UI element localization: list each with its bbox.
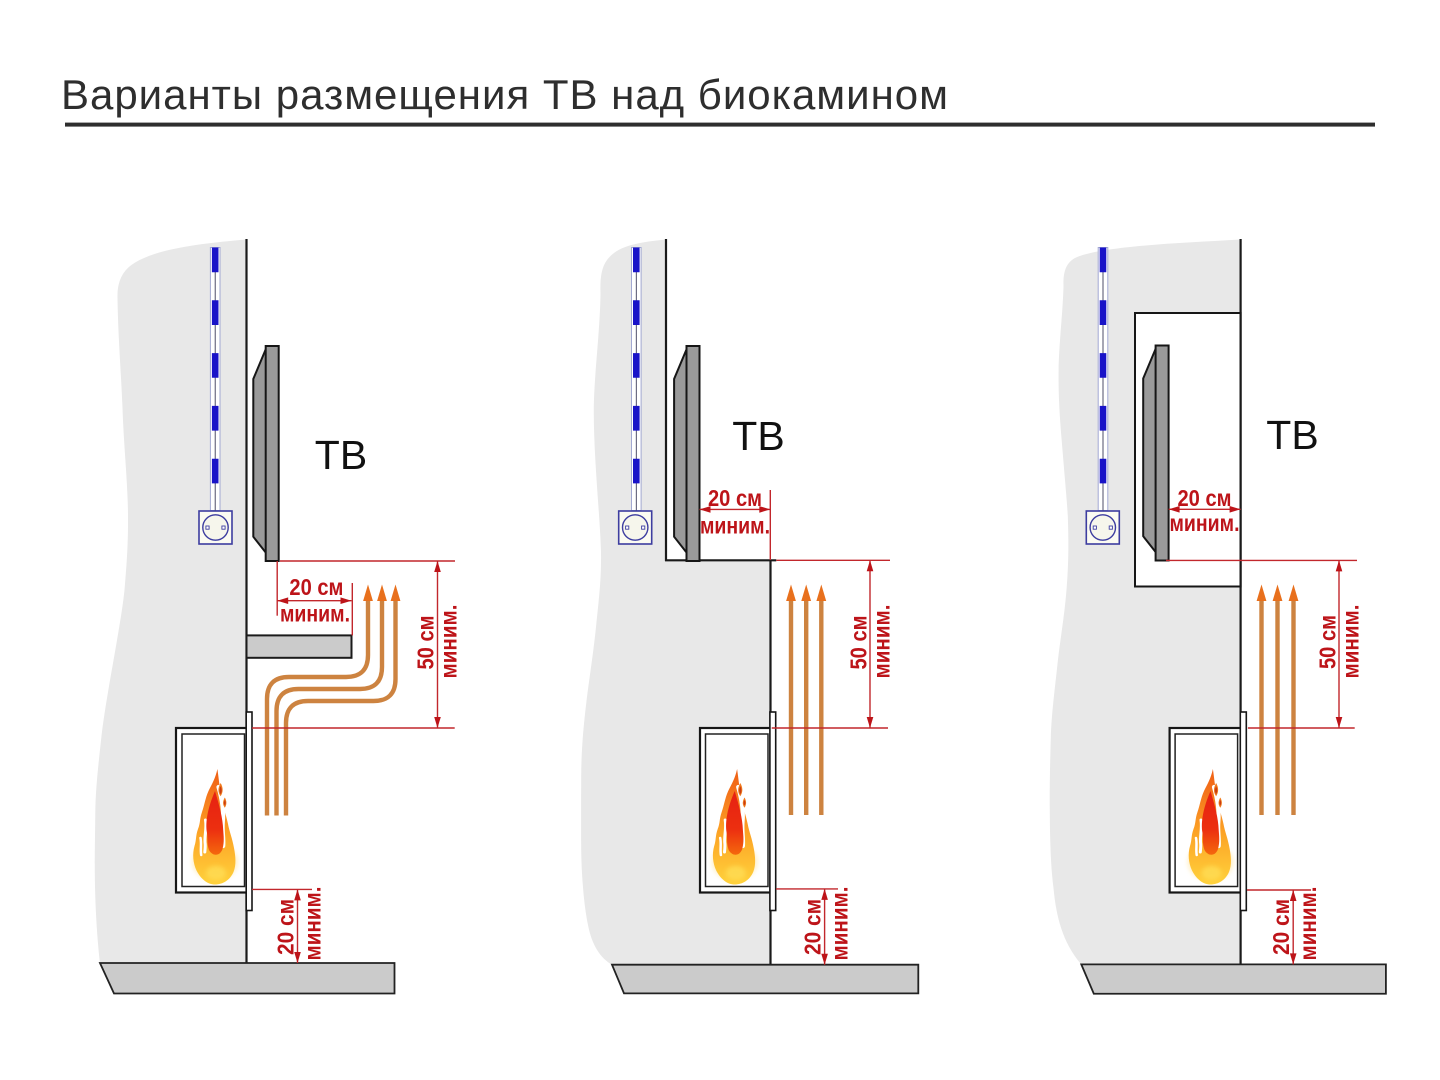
svg-text:20 см: 20 см xyxy=(1178,485,1232,511)
svg-text:миним.: миним. xyxy=(300,887,326,961)
svg-text:миним.: миним. xyxy=(1170,510,1240,536)
svg-text:миним.: миним. xyxy=(827,887,853,961)
svg-text:миним.: миним. xyxy=(1295,887,1321,961)
svg-text:миним.: миним. xyxy=(700,512,770,538)
svg-text:ТВ: ТВ xyxy=(732,413,784,459)
svg-text:миним.: миним. xyxy=(1337,605,1363,679)
svg-text:миним.: миним. xyxy=(436,605,462,679)
svg-text:миним.: миним. xyxy=(280,601,350,627)
svg-text:Варианты размещения ТВ над био: Варианты размещения ТВ над биокамином xyxy=(61,71,948,118)
svg-text:20 см: 20 см xyxy=(273,899,299,955)
svg-text:20 см: 20 см xyxy=(708,485,762,511)
svg-text:20 см: 20 см xyxy=(800,899,826,955)
svg-text:20 см: 20 см xyxy=(289,574,343,600)
svg-text:миним.: миним. xyxy=(868,605,894,679)
svg-text:ТВ: ТВ xyxy=(1266,412,1318,458)
svg-text:ТВ: ТВ xyxy=(315,432,367,478)
svg-text:20 см: 20 см xyxy=(1268,899,1294,955)
